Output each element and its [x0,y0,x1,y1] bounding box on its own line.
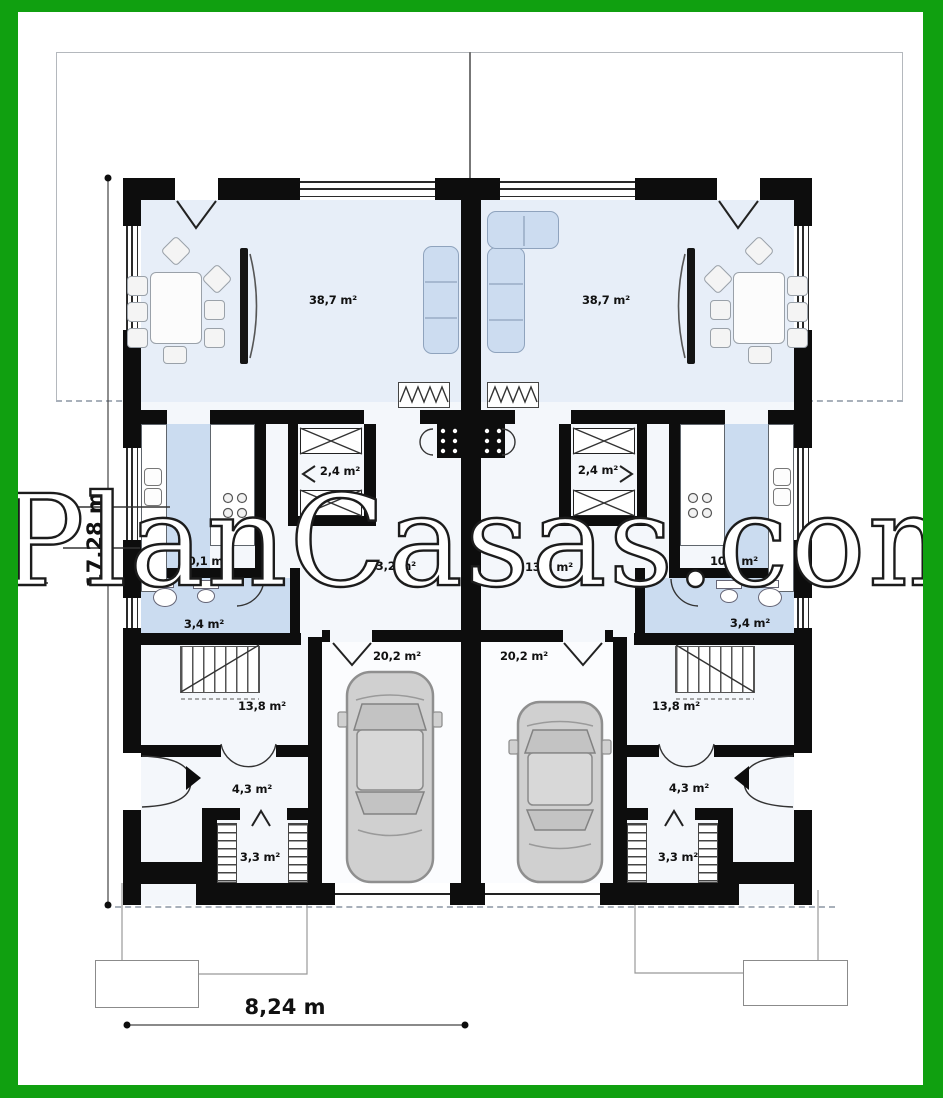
hatched-wall [627,823,647,883]
wall [372,630,461,642]
wall [364,424,376,526]
wall [218,178,300,200]
window [123,448,141,540]
hatched-wall [217,823,237,883]
front-door-opening [123,753,141,810]
wall [210,410,297,424]
wardrobe-cabinet [573,428,635,454]
wall [714,745,794,757]
wall [768,410,794,424]
room-label-entry-left: 4,3 m² [232,782,272,796]
party-wall [461,178,481,905]
wardrobe-cabinet [300,428,362,454]
dining-table [733,272,785,344]
room-label-hall-right: 13,2 m² [525,560,573,574]
room-label-bathroom-left: 3,4 m² [184,617,224,631]
wall [605,630,613,642]
kitchen-sink [144,488,162,506]
wall [297,410,364,424]
wall [635,178,717,200]
room-label-stairhall-left: 13,8 m² [238,699,286,713]
wall [123,862,202,884]
wall [638,410,725,424]
room-label-living-right: 38,7 m² [582,293,630,307]
room-label-hall-left: 13,2 m² [368,559,416,573]
room-label-kitchen-right: 10,1 m² [710,554,758,568]
wardrobe-cabinet [300,490,362,516]
kitchen-counter [680,424,725,546]
wall [196,883,335,905]
tv [240,248,248,364]
wall [718,820,733,883]
chair [127,328,148,348]
wall [287,808,322,820]
wall [637,424,647,520]
radiator [398,382,450,408]
room-label-storage-left: 3,3 m² [240,850,280,864]
wall [141,745,221,757]
wall [202,820,217,883]
window [500,178,635,200]
chair [204,328,225,348]
radiator [487,382,539,408]
wall [202,808,240,820]
room-label-stairhall-right: 13,8 m² [652,699,700,713]
wall [276,745,308,757]
chair [163,346,187,364]
window [794,448,812,540]
wall [600,883,739,905]
height-dimension-label: 17,28 m [83,492,107,588]
width-dimension-label: 8,24 m [244,995,325,1019]
hatched-wall [698,823,718,883]
room-label-kitchen-left: 10,1 m² [180,554,228,568]
room-label-storage-right: 3,3 m² [658,850,698,864]
sofa [423,246,459,354]
bathroom-sink [716,580,742,589]
tv [687,248,695,364]
callout-box-left [95,960,199,1008]
kitchen-walkway-left [167,424,210,568]
room-label-living-left: 38,7 m² [309,293,357,307]
garage-floor-left [322,642,461,883]
wall [450,883,485,905]
garage-door-opening [335,883,450,905]
kitchen-sink [773,468,791,486]
chimney-block [481,424,505,458]
corner-window-opening [717,178,760,200]
chair [127,302,148,322]
kitchen-sink [773,488,791,506]
toilet-tank [156,580,174,588]
chimney-block [437,424,461,458]
kitchen-counter [768,424,794,592]
chair [787,328,808,348]
garage-floor-right [474,642,613,883]
kitchen-sink [144,468,162,486]
wall [559,424,571,526]
floor-plan [0,0,943,1098]
toilet-tank [761,580,779,588]
bathroom-sink [193,580,219,589]
dining-table [150,272,202,344]
room-label-garage-left: 20,2 m² [373,649,421,663]
chair [204,300,225,320]
wall [669,424,680,568]
wall [474,630,563,642]
wall [733,862,812,884]
hatched-wall [288,823,308,883]
room-label-wardrobe-right: 2,4 m² [578,463,618,477]
wall [255,424,266,568]
wall [613,637,627,883]
chair [748,346,772,364]
floor-plan-page: 38,7 m² 2,4 m² 10,1 m² 13,2 m² 3,4 m² 13… [0,0,943,1098]
kitchen-counter [141,424,167,592]
wall [141,410,167,424]
front-door-opening [794,753,812,810]
corner-window-opening [175,178,218,200]
stairs [675,646,755,693]
sofa [487,247,525,353]
wall [288,516,364,526]
sofa-chaise [487,211,559,249]
callout-box-right [743,960,848,1006]
room-label-entry-right: 4,3 m² [669,781,709,795]
chair [127,276,148,296]
wardrobe-cabinet [573,490,635,516]
wall [474,410,515,424]
wall [571,410,638,424]
wall [420,410,461,424]
wall [613,808,648,820]
wall [308,637,322,883]
chair [787,276,808,296]
bathroom-sink-bowl [197,589,215,603]
window [794,598,812,628]
stairs [180,646,260,693]
wall [627,745,659,757]
toilet-bowl [153,588,177,607]
chair [710,328,731,348]
window [123,598,141,628]
wall [288,424,298,520]
kitchen-counter [210,424,255,546]
room-label-garage-right: 20,2 m² [500,649,548,663]
room-label-bathroom-right: 3,4 m² [730,616,770,630]
window [300,178,435,200]
wall [634,633,794,645]
wall [695,808,733,820]
wall [141,633,301,645]
kitchen-walkway-right [725,424,768,568]
garage-door-opening [485,883,600,905]
chair [787,302,808,322]
chair [710,300,731,320]
room-label-wardrobe-left: 2,4 m² [320,464,360,478]
wall [571,516,647,526]
toilet-bowl [758,588,782,607]
wall [322,630,330,642]
bathroom-sink-bowl [720,589,738,603]
